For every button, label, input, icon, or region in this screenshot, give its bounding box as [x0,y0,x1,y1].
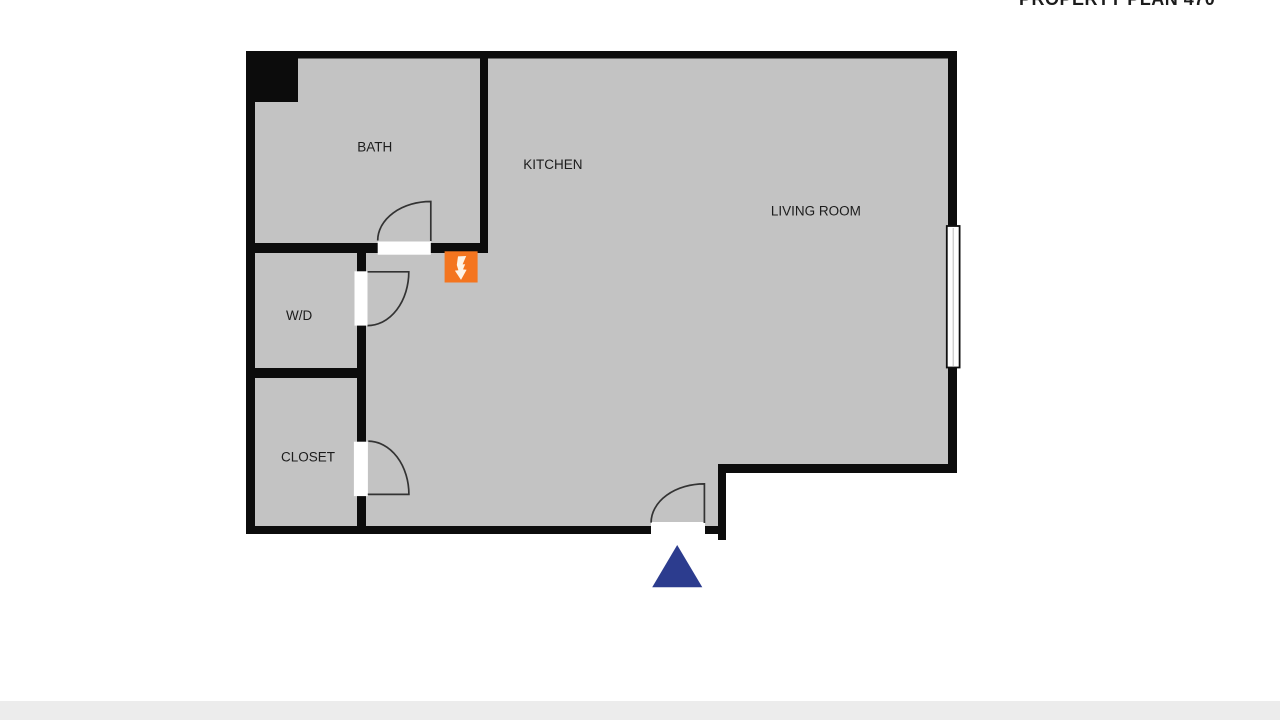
svg-text:KITCHEN: KITCHEN [523,157,582,172]
svg-text:BATH: BATH [357,140,392,155]
svg-text:CLOSET: CLOSET [281,450,335,465]
svg-text:W/D: W/D [286,308,312,323]
svg-text:PROPERTY PLAN 470: PROPERTY PLAN 470 [1019,0,1215,9]
svg-text:LIVING ROOM: LIVING ROOM [771,204,861,219]
